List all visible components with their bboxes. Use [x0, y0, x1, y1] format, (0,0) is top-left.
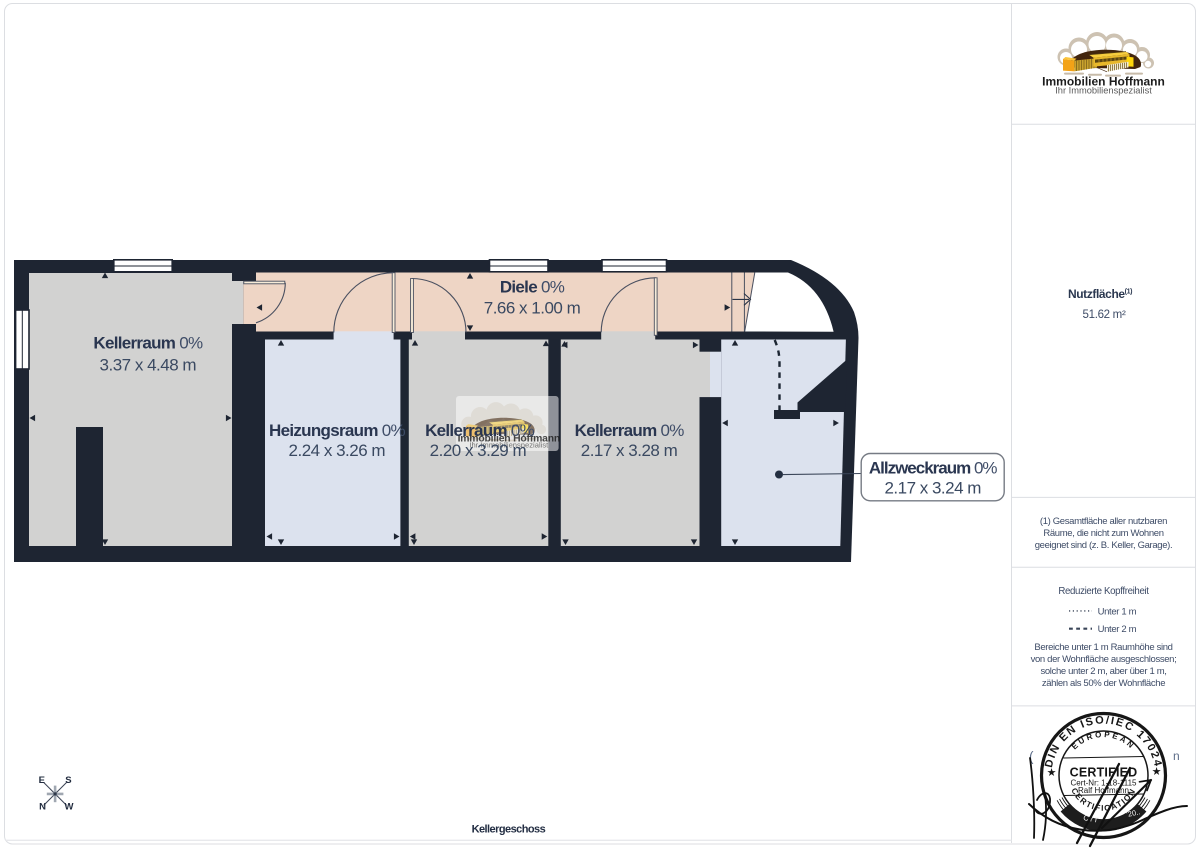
svg-text:Unter 1 m: Unter 1 m: [1098, 606, 1137, 617]
svg-text:3.37 x 4.48 m: 3.37 x 4.48 m: [100, 356, 197, 375]
svg-text:Nutzfläche(1): Nutzfläche(1): [1068, 287, 1132, 301]
svg-text:Kellergeschoss: Kellergeschoss: [472, 824, 546, 836]
svg-text:E: E: [39, 775, 45, 786]
svg-text:EUROPEAN: EUROPEAN: [1070, 730, 1137, 751]
svg-text:zählen als 50% der Wohnfläche: zählen als 50% der Wohnfläche: [1042, 678, 1165, 689]
svg-text:2.17 x 3.28 m: 2.17 x 3.28 m: [581, 441, 678, 460]
svg-text:7.66 x 1.00 m: 7.66 x 1.00 m: [484, 299, 581, 318]
svg-text:Diele 0%: Diele 0%: [500, 278, 565, 297]
svg-text:Allzweckraum 0%: Allzweckraum 0%: [869, 459, 998, 478]
svg-text:2.24 x 3.26 m: 2.24 x 3.26 m: [289, 441, 386, 460]
svg-text:N: N: [39, 802, 46, 813]
svg-text:51.62 m²: 51.62 m²: [1083, 309, 1126, 321]
svg-text:★: ★: [1047, 767, 1057, 779]
svg-text:W: W: [65, 802, 74, 813]
svg-text:geeignet sind (z. B. Keller, G: geeignet sind (z. B. Keller, Garage).: [1035, 540, 1173, 551]
svg-text:Kellerraum 0%: Kellerraum 0%: [575, 421, 685, 440]
svg-text:Unter 2 m: Unter 2 m: [1098, 624, 1137, 635]
svg-text:Räume, die nicht zum Wohnen: Räume, die nicht zum Wohnen: [1043, 528, 1163, 539]
svg-text:2.17 x 3.24 m: 2.17 x 3.24 m: [884, 479, 981, 498]
svg-text:Kellerraum 0%: Kellerraum 0%: [93, 334, 203, 353]
svg-text:von der Wohnfläche ausgeschlos: von der Wohnfläche ausgeschlossen;: [1031, 654, 1177, 665]
svg-text:solche unter 2 m, aber über 1: solche unter 2 m, aber über 1 m,: [1040, 666, 1166, 677]
svg-text:S: S: [65, 775, 71, 786]
svg-text:2.20 x 3.29 m: 2.20 x 3.29 m: [430, 441, 527, 460]
svg-text:Kellerraum 0%: Kellerraum 0%: [425, 421, 535, 440]
svg-text:Heizungsraum 0%: Heizungsraum 0%: [269, 421, 406, 440]
svg-text:Reduzierte Kopffreiheit: Reduzierte Kopffreiheit: [1058, 586, 1149, 597]
svg-text:Bereiche unter 1 m Raumhöhe si: Bereiche unter 1 m Raumhöhe sind: [1034, 642, 1172, 653]
svg-text:Ihr Immobilienspezialist: Ihr Immobilienspezialist: [1055, 86, 1152, 96]
svg-text:(1) Gesamtfläche aller nutzbar: (1) Gesamtfläche aller nutzbaren: [1040, 516, 1167, 527]
svg-text:★: ★: [1152, 766, 1162, 778]
svg-text:n: n: [1173, 749, 1180, 763]
